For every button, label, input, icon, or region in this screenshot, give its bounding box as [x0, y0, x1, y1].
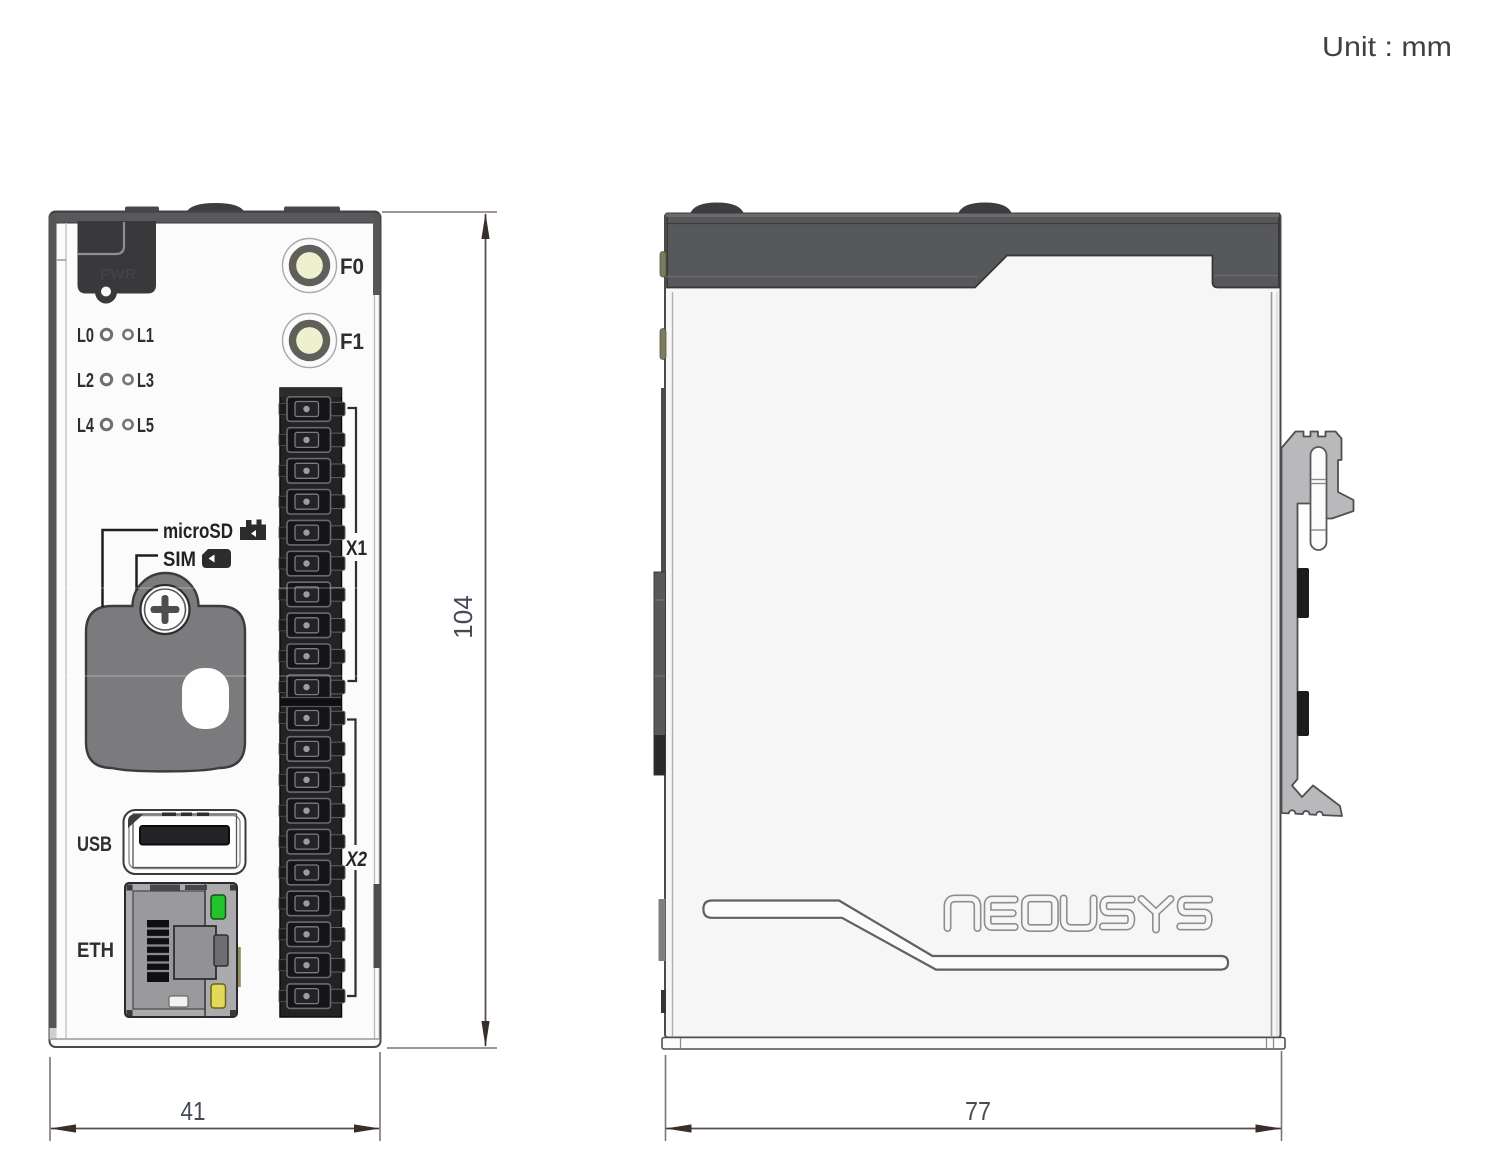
- svg-text:PWR: PWR: [100, 266, 136, 283]
- svg-text:USB: USB: [77, 833, 112, 856]
- svg-text:L5: L5: [137, 414, 154, 437]
- svg-text:41: 41: [181, 1096, 206, 1126]
- svg-text:104: 104: [448, 595, 478, 638]
- svg-text:L4: L4: [77, 414, 94, 437]
- svg-text:L1: L1: [137, 324, 154, 347]
- svg-text:Unit : mm: Unit : mm: [1322, 31, 1452, 62]
- svg-text:ETH: ETH: [77, 939, 114, 962]
- svg-text:SIM: SIM: [163, 548, 196, 571]
- svg-text:L2: L2: [77, 369, 94, 392]
- svg-text:L3: L3: [137, 369, 154, 392]
- svg-text:77: 77: [965, 1096, 991, 1126]
- svg-text:X1: X1: [346, 537, 367, 560]
- svg-text:F0: F0: [340, 254, 364, 279]
- svg-text:X2: X2: [345, 848, 367, 871]
- svg-text:L0: L0: [77, 324, 94, 347]
- svg-text:microSD: microSD: [163, 520, 233, 543]
- svg-text:F1: F1: [340, 329, 364, 354]
